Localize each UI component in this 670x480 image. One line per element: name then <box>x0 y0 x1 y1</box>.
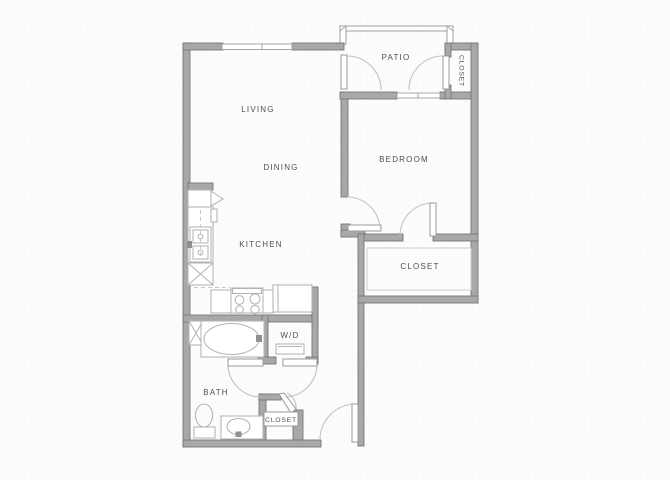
patio-door-leaf <box>341 55 347 89</box>
bath-door-leaf <box>228 359 263 366</box>
patio-label: PATIO <box>382 53 411 62</box>
kitchen-stub-wall <box>188 183 213 190</box>
walkin-closet-bottom-wall <box>358 296 478 303</box>
patio-closet-door-arc <box>409 56 443 90</box>
floor-plan: LIVING DINING KITCHEN BEDROOM PATIO BATH… <box>0 0 670 480</box>
dining-label: DINING <box>263 163 298 172</box>
floor-plan-page: LIVING DINING KITCHEN BEDROOM PATIO BATH… <box>0 0 670 480</box>
patio-railing <box>340 26 453 46</box>
top-wall-west <box>183 43 223 50</box>
walkin-closet-door-leaf <box>430 203 436 236</box>
bathtub <box>201 321 264 357</box>
bottom-exterior-wall <box>183 440 321 447</box>
room-labels: LIVING DINING KITCHEN BEDROOM PATIO BATH… <box>203 53 464 424</box>
kitchen-label: KITCHEN <box>239 240 283 249</box>
walkin-closet-door-arc <box>400 203 433 236</box>
vanity-faucet <box>236 432 242 438</box>
patio-door-arc <box>347 56 381 90</box>
entry-closet-label: CLOSET <box>265 417 297 424</box>
refrigerator <box>188 190 211 207</box>
sink-faucet <box>187 241 192 248</box>
kitchen-fixtures <box>187 190 312 314</box>
entry-door-leaf <box>352 404 358 442</box>
wd-right-wall <box>312 287 318 364</box>
patio-rail-top <box>340 26 453 31</box>
patio-closet-door-leaf <box>443 56 449 89</box>
bedroom-door-leaf <box>348 225 381 231</box>
entry-door-arc <box>320 404 356 440</box>
patio-closet-label: CLOSET <box>458 55 465 87</box>
entry-closet-top-wall <box>259 394 281 400</box>
counter-return <box>211 209 217 222</box>
bedroom-left-wall <box>341 92 348 197</box>
wd-door-leaf <box>283 359 317 366</box>
wd-door-arc <box>284 364 317 397</box>
bath-label: BATH <box>203 388 229 397</box>
top-wall-east <box>292 43 344 50</box>
dishwasher <box>273 285 312 312</box>
walkin-closet-top-wall-east <box>433 234 478 241</box>
toilet-tank <box>194 427 215 438</box>
bathtub-faucet <box>256 335 262 342</box>
wd-label: W/D <box>280 331 299 340</box>
living-label: LIVING <box>241 105 274 114</box>
walkin-closet-left-wall <box>358 234 364 446</box>
walls <box>183 43 478 447</box>
toilet-bowl <box>196 404 213 427</box>
walkin-closet-top-wall-west <box>358 234 403 241</box>
bedroom-label: BEDROOM <box>379 155 429 164</box>
refrigerator-door-swing <box>211 191 223 206</box>
stove-back-panel <box>233 289 262 294</box>
bedroom-window <box>397 93 440 98</box>
living-window <box>222 44 292 50</box>
patio-closet-stub-top <box>445 43 451 57</box>
bath-door-arc <box>228 364 261 397</box>
right-exterior-wall <box>471 43 478 303</box>
bedroom-top-wall-west <box>340 92 397 99</box>
walkin-closet-label: CLOSET <box>400 262 439 271</box>
bath-fixtures <box>189 321 264 439</box>
washer-dryer-unit <box>276 344 304 354</box>
